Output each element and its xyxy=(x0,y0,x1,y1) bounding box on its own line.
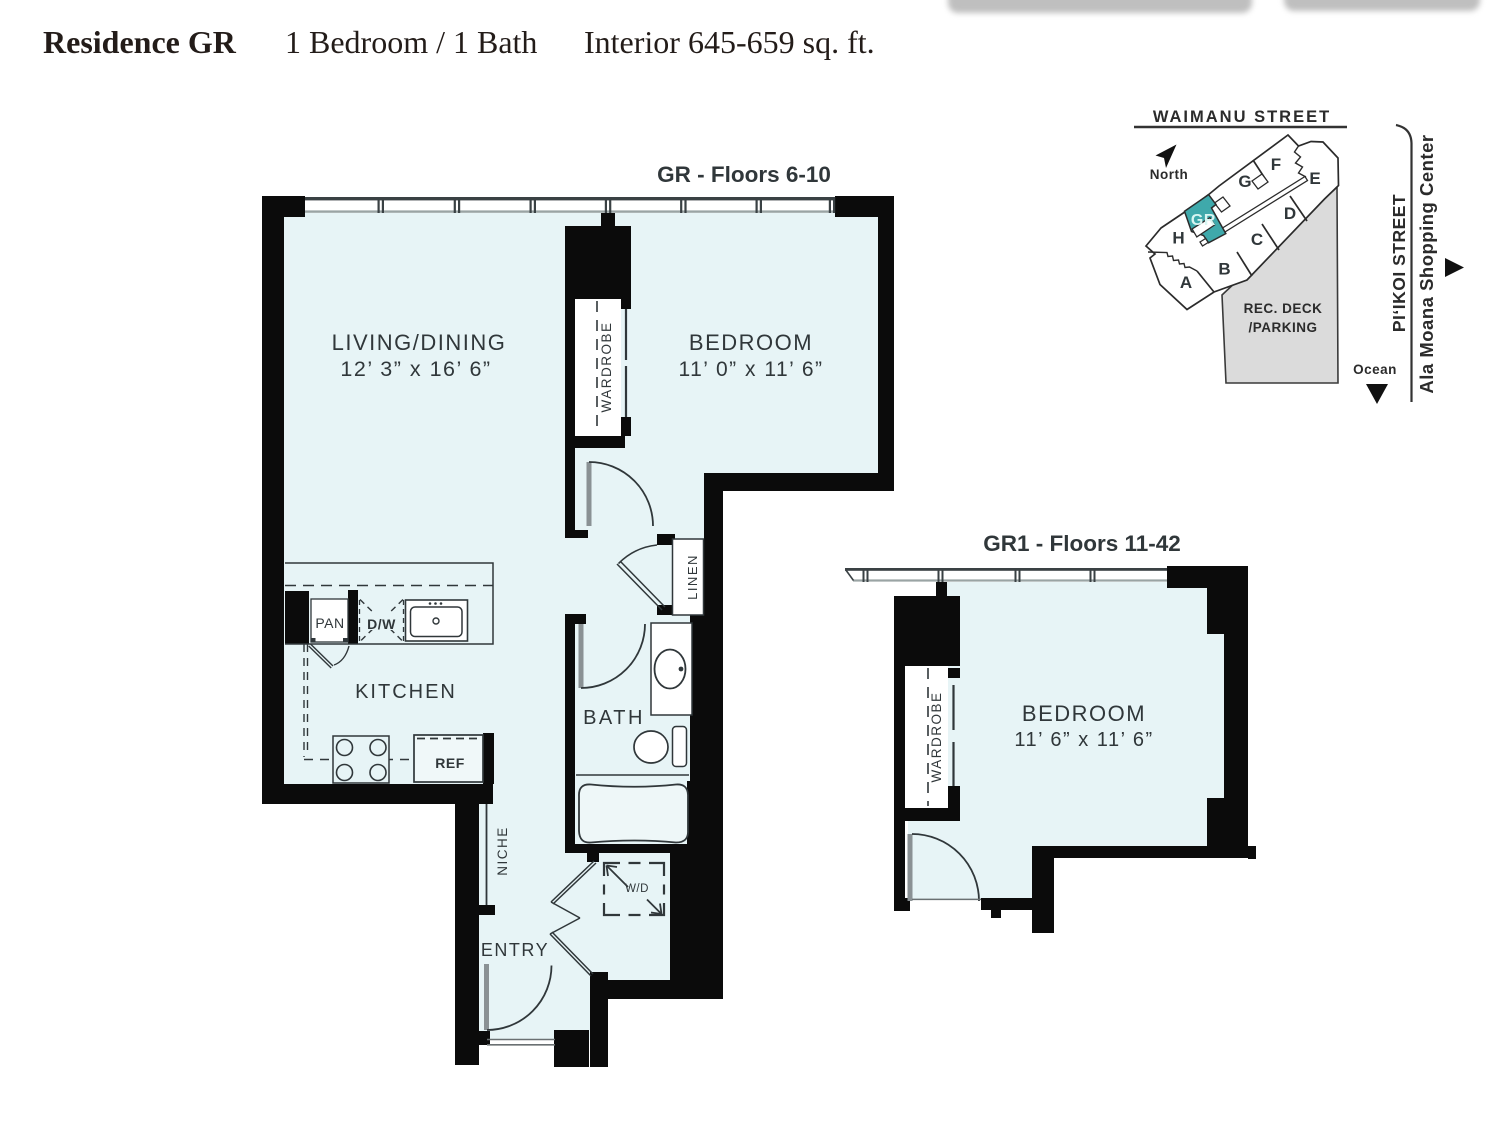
svg-text:PAN: PAN xyxy=(315,615,344,631)
svg-text:D/W: D/W xyxy=(367,616,396,632)
svg-text:BATH: BATH xyxy=(583,707,645,729)
svg-text:11’ 6” x 11’ 6”: 11’ 6” x 11’ 6” xyxy=(1014,729,1153,751)
svg-text:E: E xyxy=(1309,169,1320,188)
svg-text:NICHE: NICHE xyxy=(495,826,510,876)
svg-text:BEDROOM: BEDROOM xyxy=(1022,701,1146,726)
svg-text:PIʻIKOI STREET: PIʻIKOI STREET xyxy=(1389,194,1409,332)
svg-text:11’ 0” x 11’ 6”: 11’ 0” x 11’ 6” xyxy=(678,358,823,381)
svg-text:W/D: W/D xyxy=(625,883,649,895)
svg-text:KITCHEN: KITCHEN xyxy=(355,681,457,703)
svg-text:GR: GR xyxy=(1191,212,1216,229)
svg-text:REC. DECK: REC. DECK xyxy=(1244,301,1323,316)
svg-text:A: A xyxy=(1180,273,1192,292)
svg-text:North: North xyxy=(1150,167,1189,182)
svg-text:GR - Floors 6-10: GR - Floors 6-10 xyxy=(657,162,831,187)
svg-text:C: C xyxy=(1251,230,1263,249)
svg-text:H: H xyxy=(1172,229,1184,248)
svg-text:WARDROBE: WARDROBE xyxy=(599,321,614,412)
svg-text:12’ 3” x 16’ 6”: 12’ 3” x 16’ 6” xyxy=(340,357,491,381)
svg-text:G: G xyxy=(1238,172,1251,191)
svg-text:B: B xyxy=(1218,260,1230,279)
svg-text:GR1 - Floors 11-42: GR1 - Floors 11-42 xyxy=(983,531,1181,556)
svg-text:LIVING/DINING: LIVING/DINING xyxy=(332,330,507,355)
svg-text:BEDROOM: BEDROOM xyxy=(689,330,813,355)
svg-text:Ocean: Ocean xyxy=(1353,362,1397,377)
svg-text:WAIMANU STREET: WAIMANU STREET xyxy=(1153,108,1331,126)
svg-text:LINEN: LINEN xyxy=(685,554,700,600)
svg-text:/PARKING: /PARKING xyxy=(1248,320,1317,335)
svg-text:F: F xyxy=(1271,155,1281,174)
svg-text:Ala Moana Shopping Center: Ala Moana Shopping Center xyxy=(1416,134,1437,393)
svg-text:REF: REF xyxy=(435,755,465,771)
svg-text:ENTRY: ENTRY xyxy=(481,940,549,960)
svg-text:D: D xyxy=(1284,204,1296,223)
svg-text:WARDROBE: WARDROBE xyxy=(929,691,944,782)
